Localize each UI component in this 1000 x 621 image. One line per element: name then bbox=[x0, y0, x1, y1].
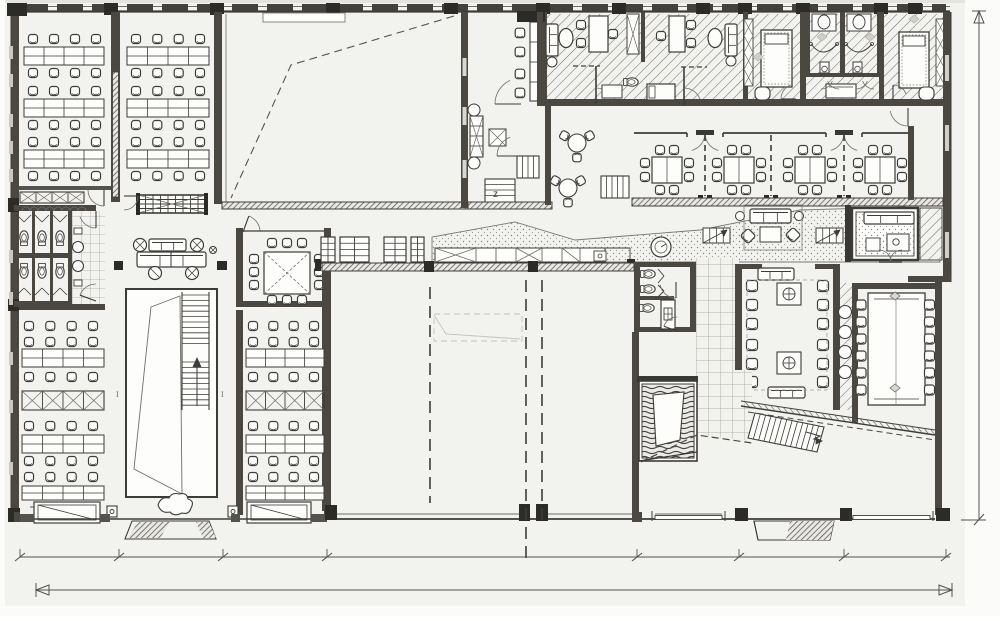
svg-text:z: z bbox=[493, 189, 498, 200]
svg-text:I: I bbox=[116, 390, 119, 399]
svg-text:I: I bbox=[221, 390, 224, 399]
